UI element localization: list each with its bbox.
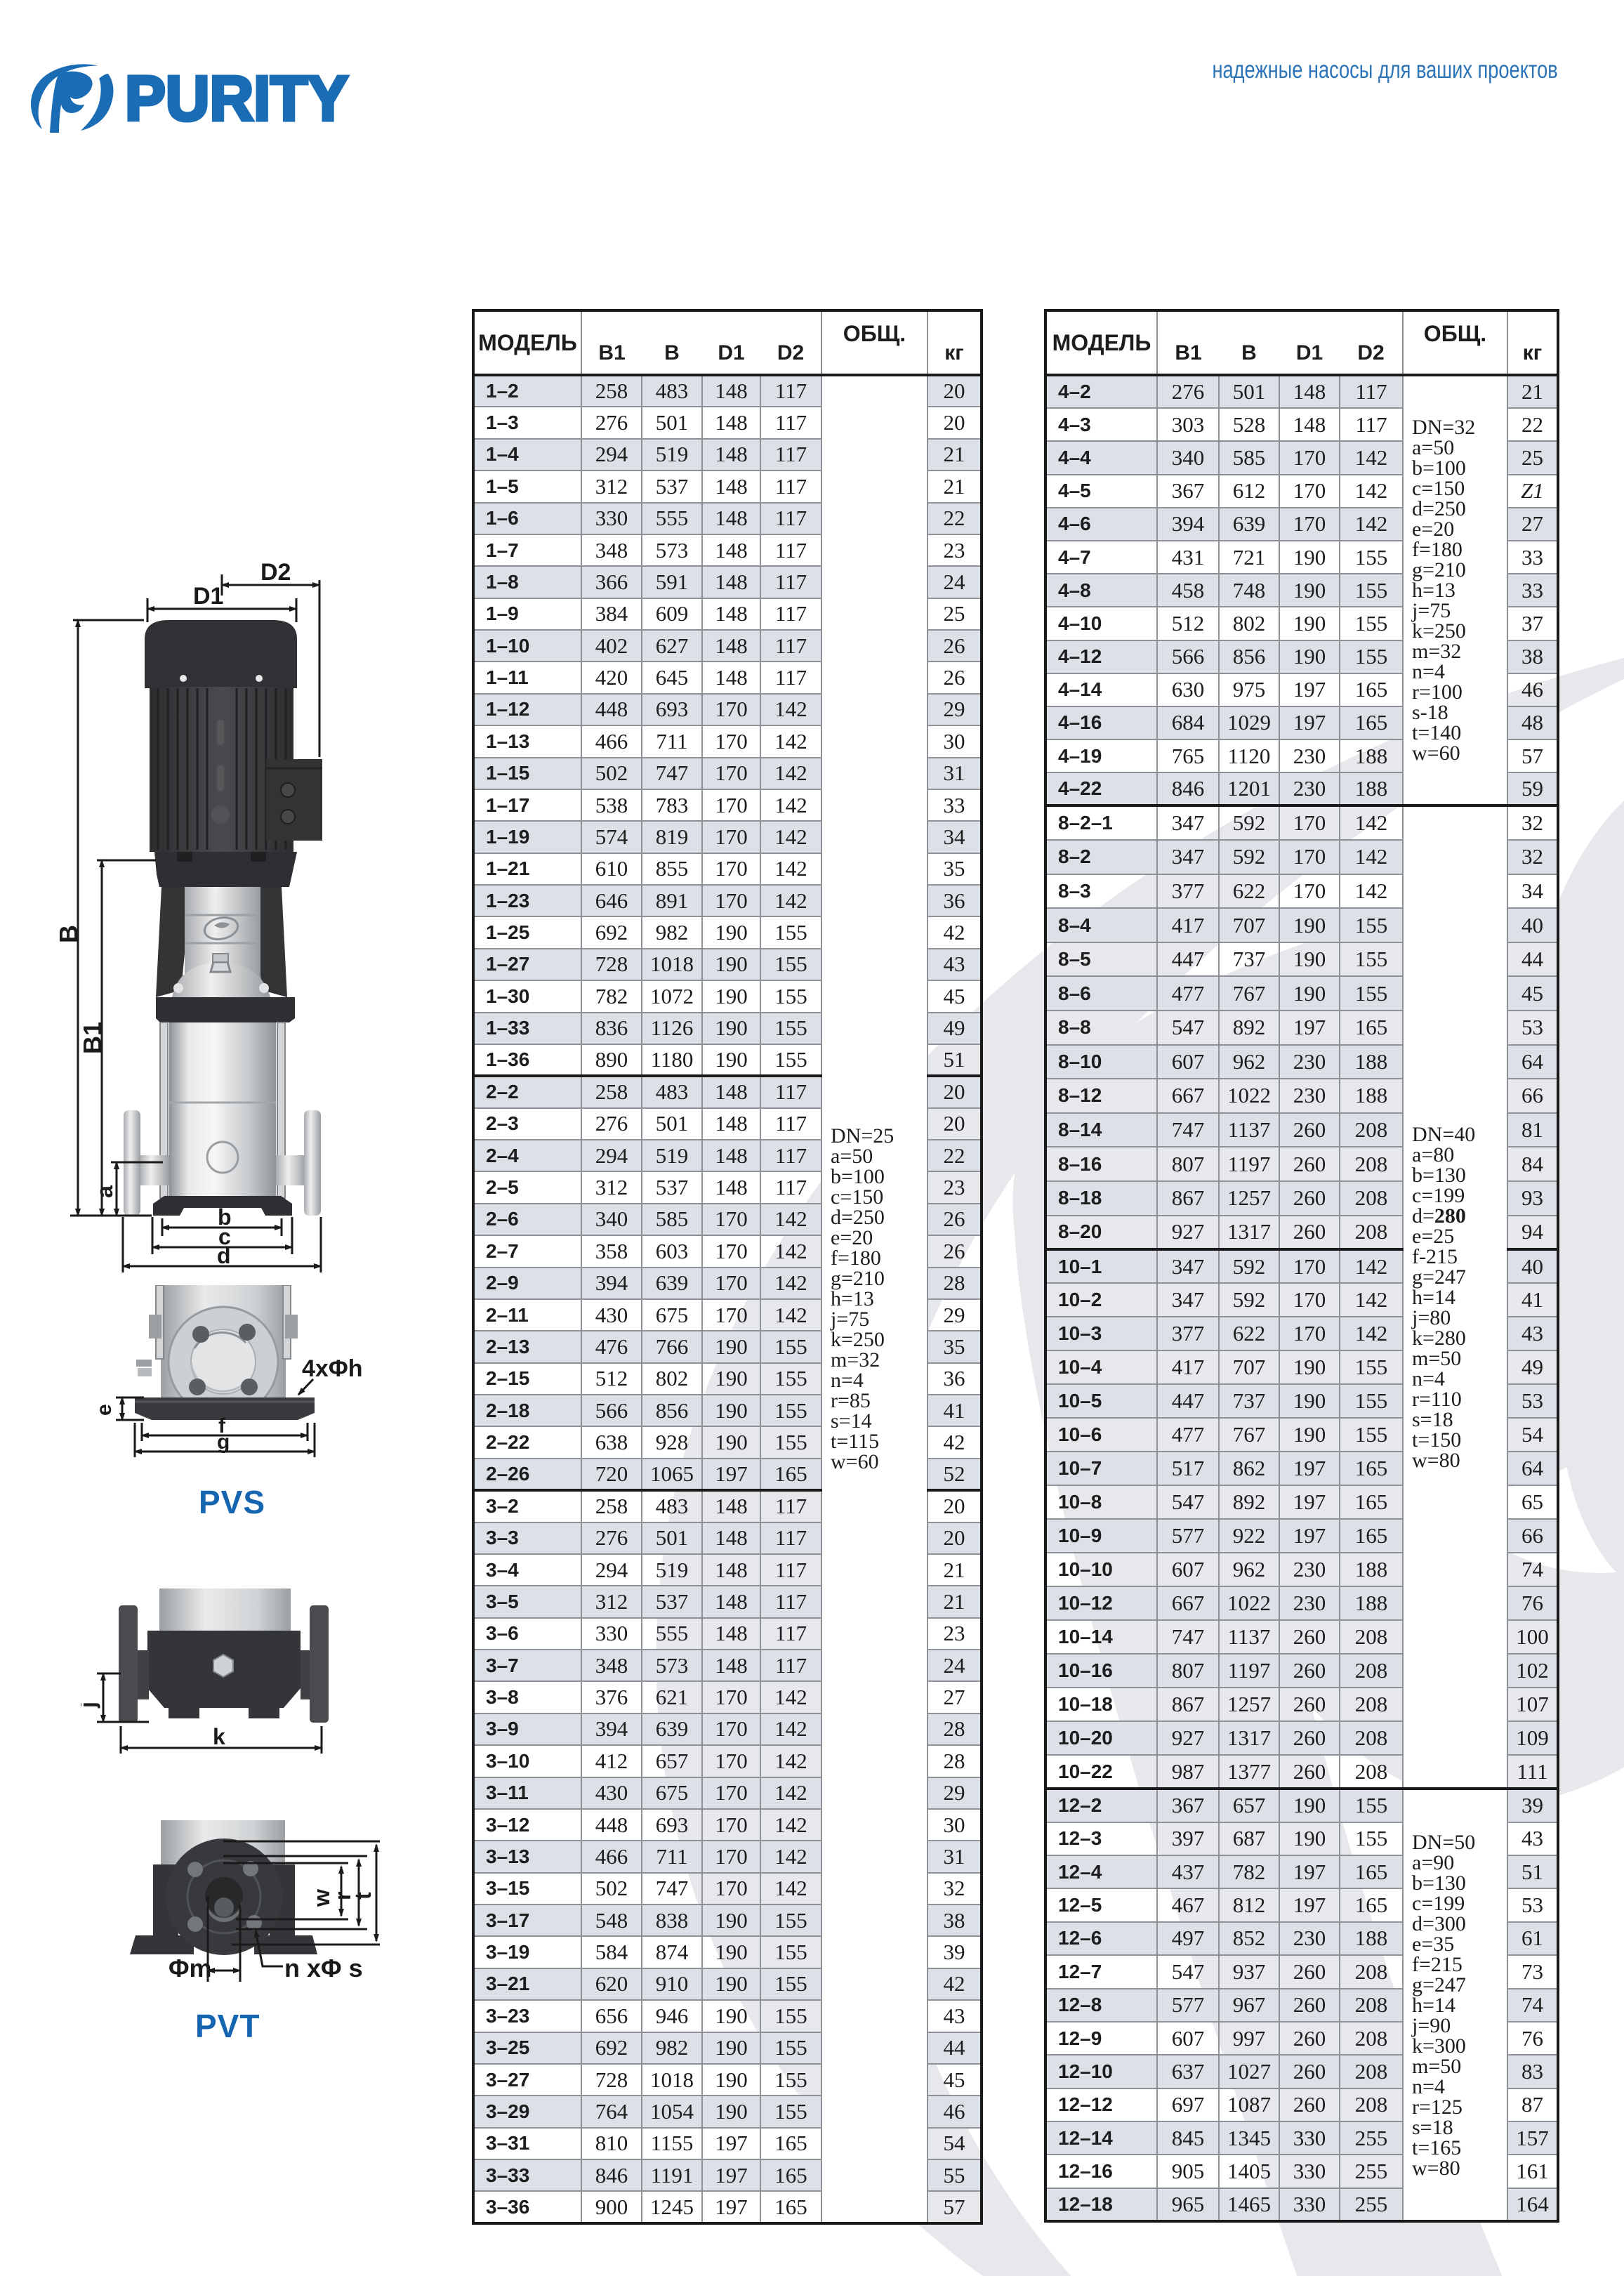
svg-text:j: j xyxy=(81,1702,100,1709)
svg-text:g: g xyxy=(217,1430,230,1454)
svg-text:B1: B1 xyxy=(78,1022,107,1054)
svg-text:t: t xyxy=(350,1892,376,1900)
svg-text:PURITY: PURITY xyxy=(125,64,348,134)
svg-text:B: B xyxy=(56,925,83,943)
svg-text:d: d xyxy=(217,1243,231,1268)
svg-text:D2: D2 xyxy=(260,559,291,586)
svg-text:a: a xyxy=(92,1185,117,1198)
svg-text:Φm: Φm xyxy=(169,1954,212,1982)
svg-text:D1: D1 xyxy=(193,583,223,610)
svg-text:4xΦh: 4xΦh xyxy=(302,1355,363,1382)
svg-text:k: k xyxy=(213,1724,225,1749)
svg-text:n xΦ s: n xΦ s xyxy=(284,1954,363,1982)
svg-text:e: e xyxy=(98,1404,116,1416)
